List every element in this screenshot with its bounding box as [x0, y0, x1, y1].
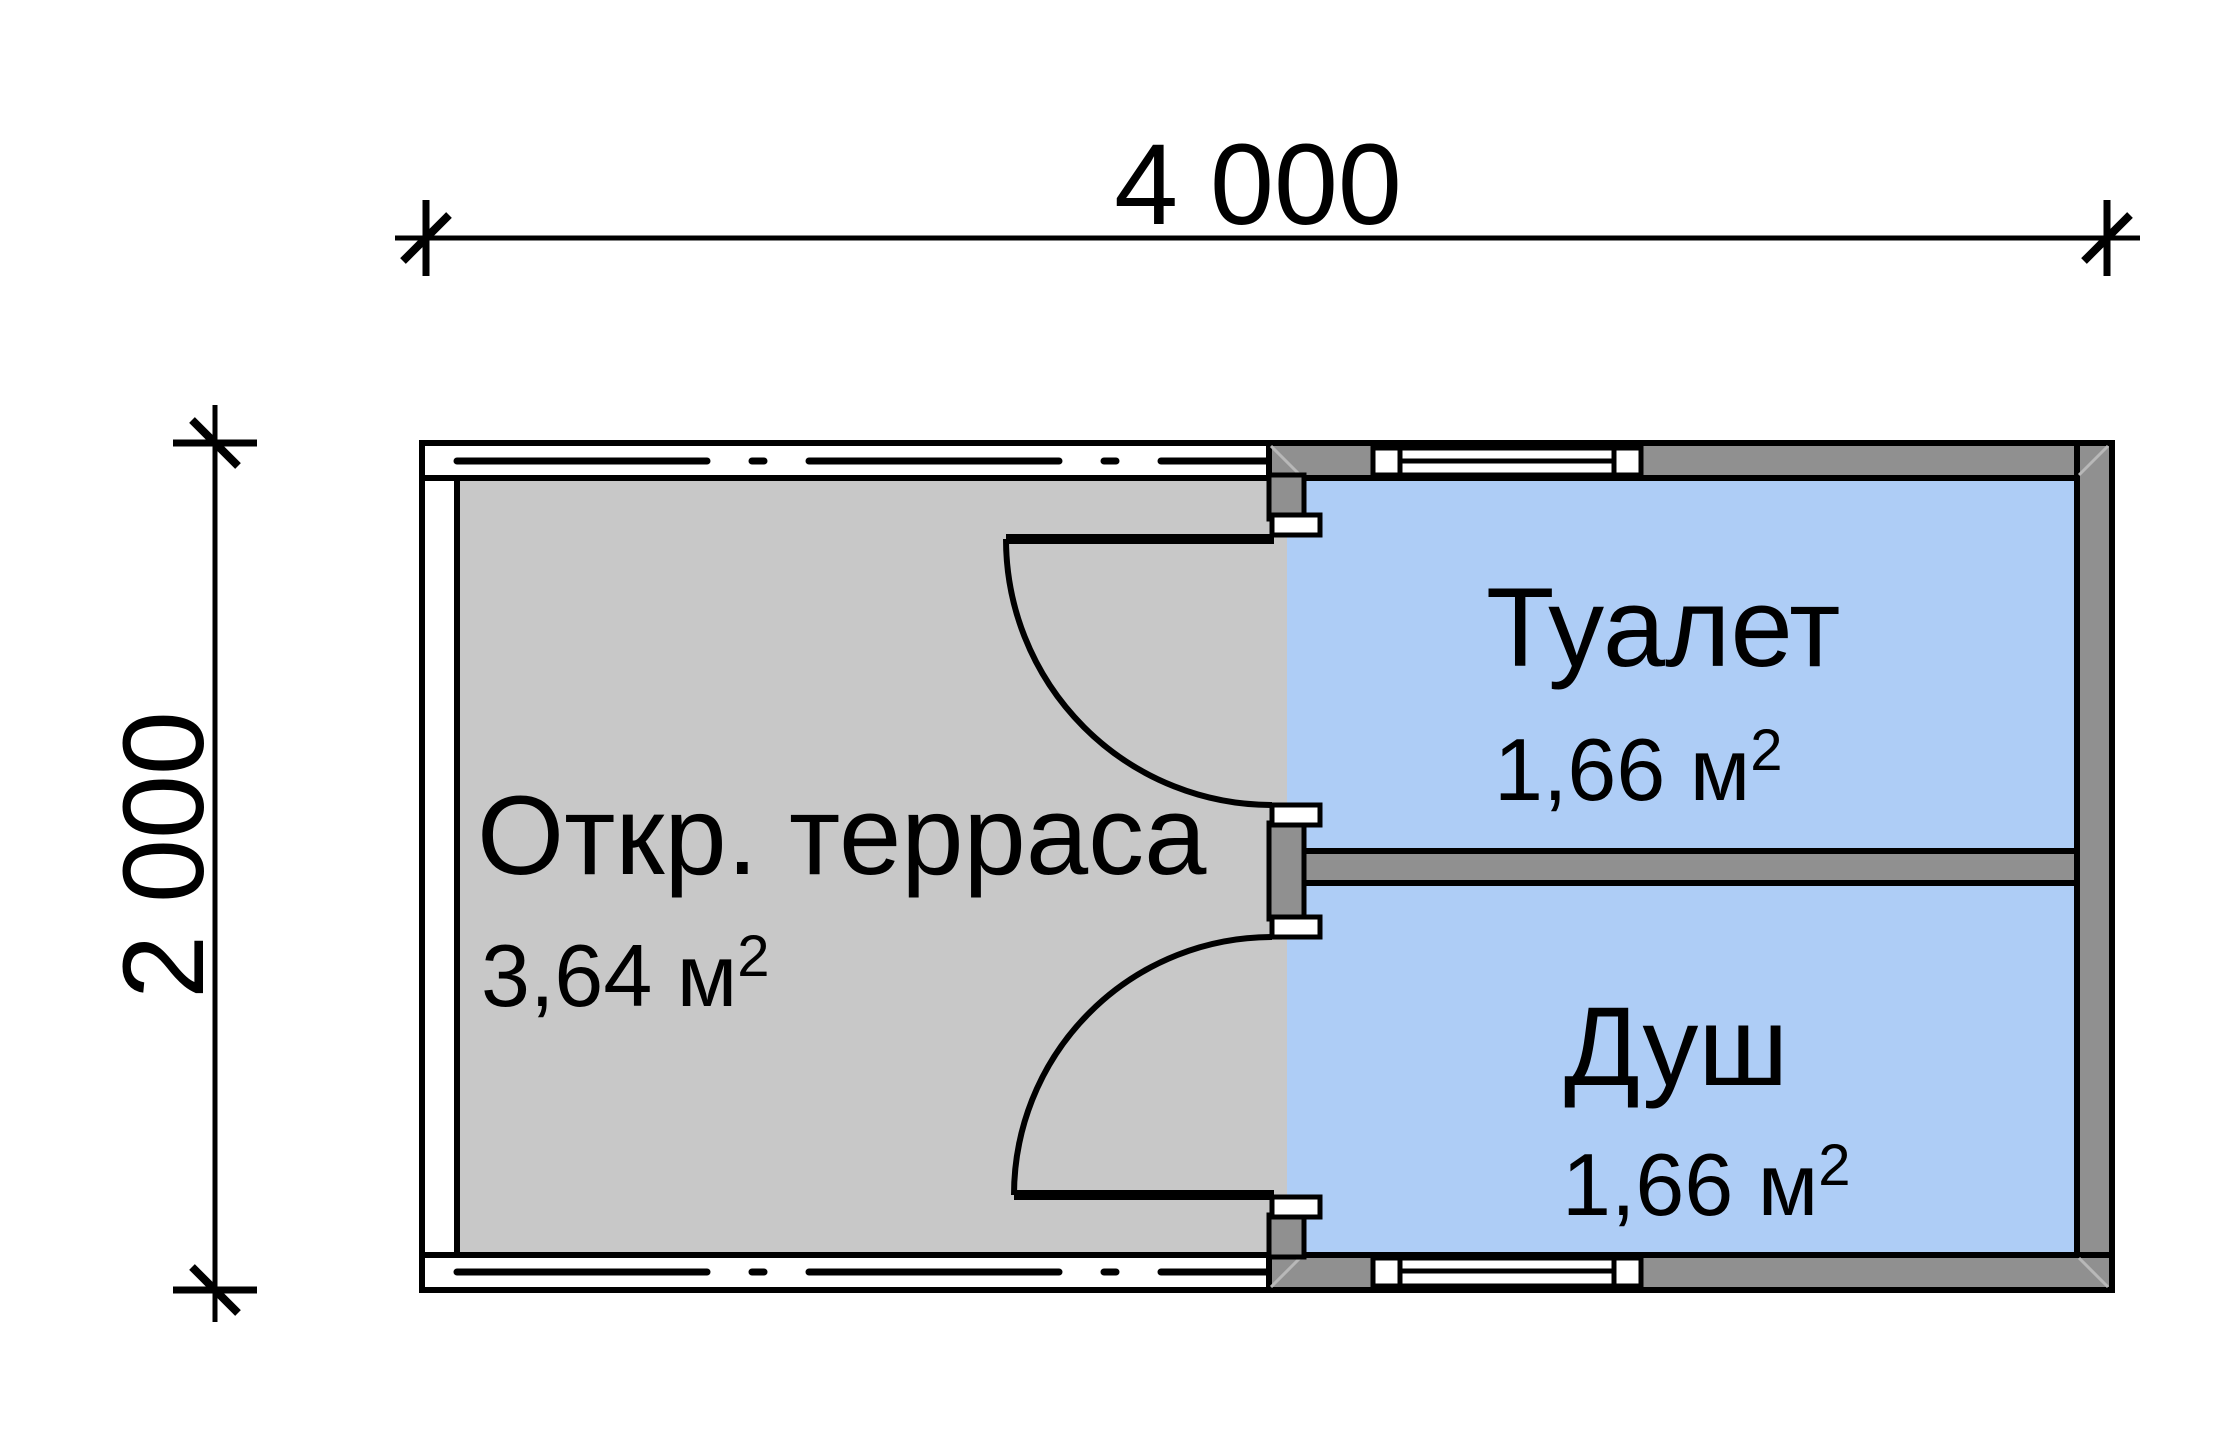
room-area-terrace-sup: 2 [737, 924, 769, 989]
window-north [1373, 448, 1641, 475]
wall-west-bottom-segment [1269, 1215, 1304, 1257]
dimension-width: 4 000 [395, 121, 2140, 276]
wall-east [2077, 443, 2112, 1290]
dimension-width-label: 4 000 [1114, 121, 1402, 249]
room-name-shower: Душ [1564, 984, 1788, 1109]
door-jamb-toilet-top [1272, 515, 1320, 535]
window-south [1373, 1258, 1641, 1286]
room-area-shower: 1,66 м2 [1562, 1133, 1851, 1234]
door-jamb-shower-bottom [1272, 1197, 1320, 1217]
room-area-shower-sup: 2 [1818, 1133, 1850, 1198]
floor-plan-drawing: 4 000 2 000 Откр. терраса 3,64 м2 Туалет… [0, 0, 2235, 1438]
room-area-toilet-sup: 2 [1750, 718, 1782, 783]
room-name-toilet: Туалет [1486, 565, 1840, 690]
room-area-terrace-value: 3,64 м [481, 926, 737, 1025]
room-area-shower-value: 1,66 м [1562, 1135, 1818, 1234]
dimension-height: 2 000 [100, 405, 257, 1322]
terrace-wall-west [422, 443, 457, 1290]
room-area-terrace: 3,64 м2 [481, 924, 770, 1025]
room-area-toilet-value: 1,66 м [1494, 720, 1750, 819]
dimension-height-label: 2 000 [100, 711, 228, 999]
room-area-toilet: 1,66 м2 [1494, 718, 1783, 819]
door-jamb-toilet-bottom [1272, 805, 1320, 825]
wall-partition-middle [1296, 851, 2082, 883]
floor-plan-page: 4 000 2 000 Откр. терраса 3,64 м2 Туалет… [0, 0, 2235, 1438]
wall-west-top-segment [1269, 475, 1304, 519]
wall-west-middle-segment [1269, 823, 1304, 919]
room-name-terrace: Откр. терраса [477, 773, 1207, 898]
door-jamb-shower-top [1272, 917, 1320, 937]
